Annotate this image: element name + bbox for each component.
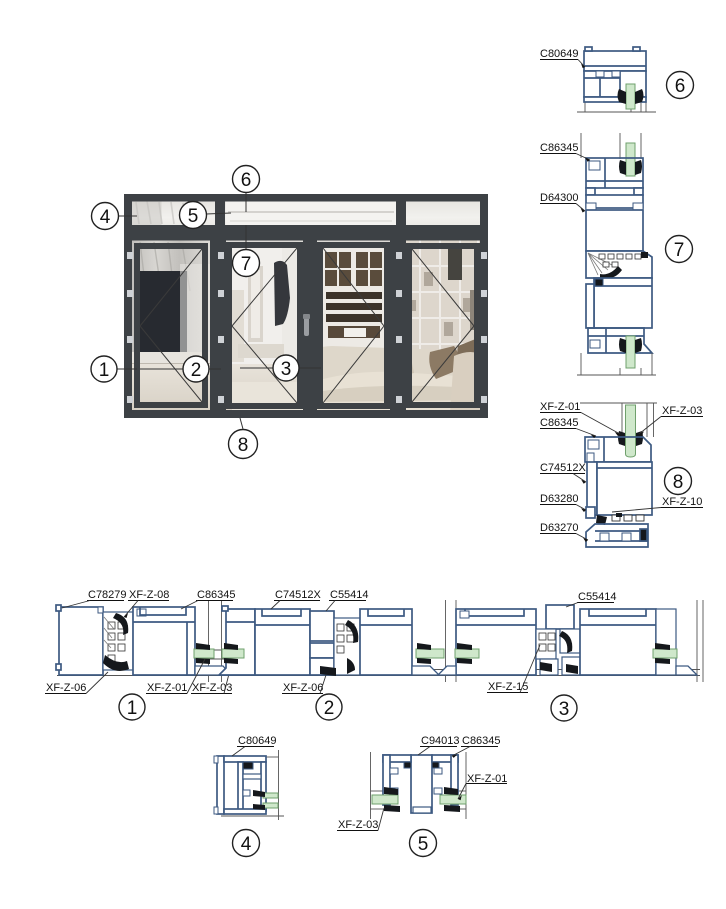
svg-text:C80649: C80649	[238, 735, 277, 747]
svg-text:3: 3	[559, 699, 570, 720]
svg-text:C55414: C55414	[578, 591, 617, 603]
svg-text:8: 8	[673, 472, 684, 493]
svg-text:7: 7	[241, 254, 252, 275]
svg-text:C78279: C78279	[88, 589, 127, 601]
svg-text:D63280: D63280	[540, 493, 579, 505]
svg-text:XF-Z-08: XF-Z-08	[129, 589, 169, 601]
svg-text:5: 5	[418, 834, 429, 855]
svg-text:C86345: C86345	[462, 735, 501, 747]
svg-text:7: 7	[674, 240, 685, 261]
svg-text:C86345: C86345	[540, 417, 579, 429]
svg-text:1: 1	[127, 698, 138, 719]
svg-text:C94013: C94013	[421, 735, 460, 747]
svg-text:6: 6	[675, 76, 686, 97]
svg-text:XF-Z-06: XF-Z-06	[46, 682, 86, 694]
svg-text:C55414: C55414	[330, 589, 369, 601]
svg-text:XF-Z-01: XF-Z-01	[540, 401, 580, 413]
svg-text:XF-Z-06: XF-Z-06	[283, 682, 323, 694]
svg-text:2: 2	[191, 360, 202, 381]
svg-text:6: 6	[241, 170, 252, 191]
svg-text:4: 4	[241, 834, 252, 855]
svg-text:C74512X: C74512X	[540, 462, 587, 474]
svg-text:1: 1	[99, 360, 110, 381]
svg-text:C74512X: C74512X	[275, 589, 322, 601]
svg-text:5: 5	[188, 206, 199, 227]
svg-text:2: 2	[324, 698, 335, 719]
svg-text:4: 4	[100, 207, 111, 228]
svg-text:XF-Z-03: XF-Z-03	[662, 405, 702, 417]
svg-text:XF-Z-10: XF-Z-10	[662, 496, 702, 508]
svg-text:8: 8	[238, 435, 249, 456]
svg-text:C86345: C86345	[540, 142, 579, 154]
svg-text:C80649: C80649	[540, 48, 579, 60]
svg-text:XF-Z-01: XF-Z-01	[147, 682, 187, 694]
svg-text:D64300: D64300	[540, 192, 579, 204]
svg-text:3: 3	[281, 359, 292, 380]
svg-text:C86345: C86345	[197, 589, 236, 601]
svg-text:XF-Z-03: XF-Z-03	[338, 819, 378, 831]
svg-text:D63270: D63270	[540, 522, 579, 534]
